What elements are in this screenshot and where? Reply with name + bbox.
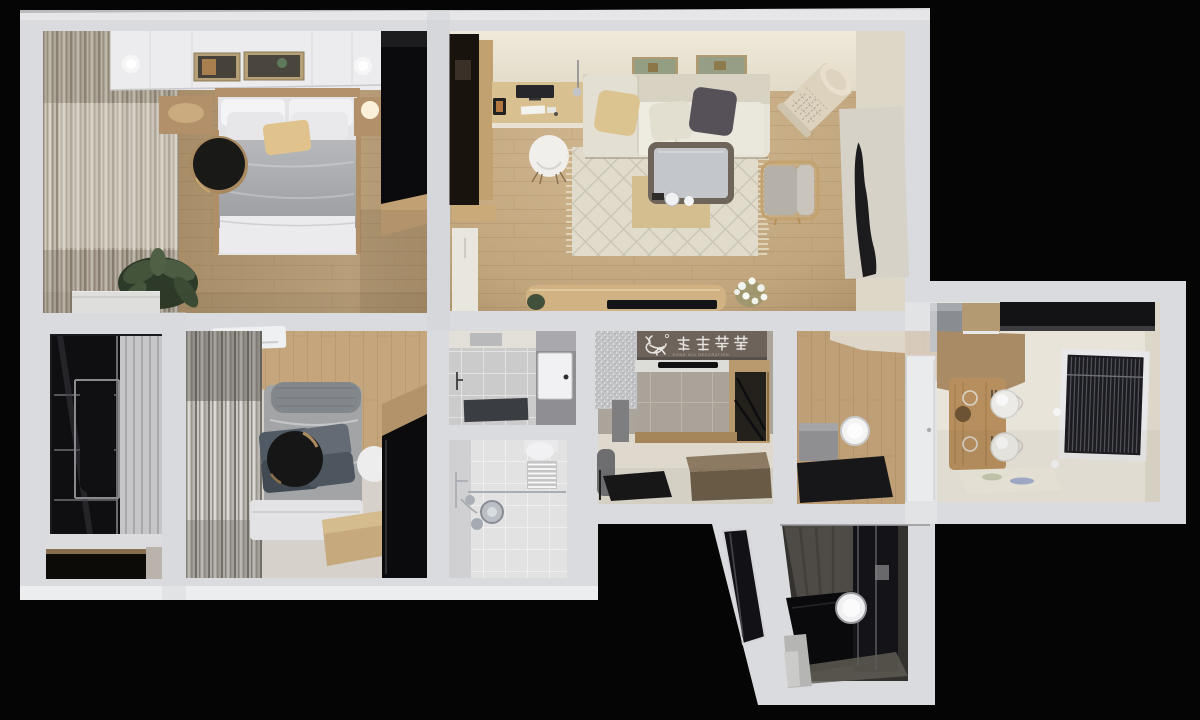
svg-text:HONG NIU DECORATION: HONG NIU DECORATION (673, 353, 730, 357)
